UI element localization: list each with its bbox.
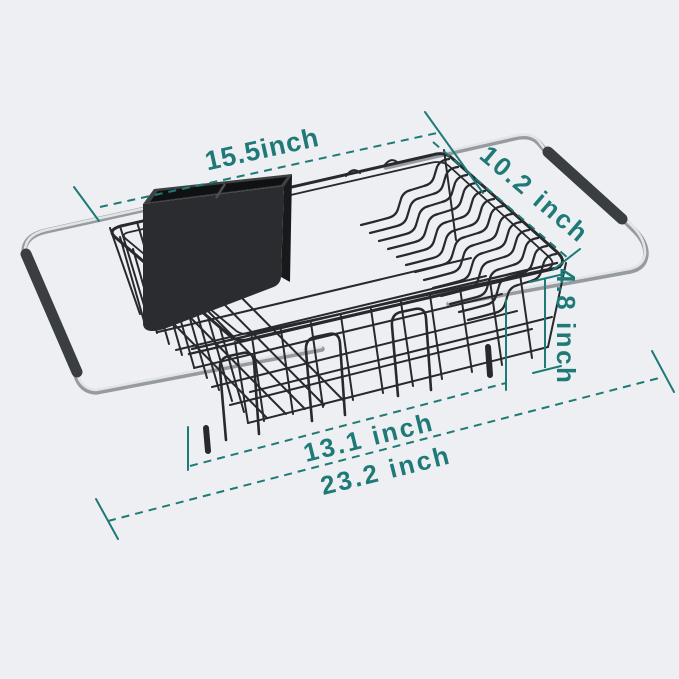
dish-rack-illustration: 15.5inch 10.2 inch 4.8 inch 13.1 inch 23… (0, 0, 679, 679)
dimension-label-height: 4.8 inch (551, 269, 581, 386)
product-dimension-diagram: 15.5inch 10.2 inch 4.8 inch 13.1 inch 23… (0, 0, 679, 679)
